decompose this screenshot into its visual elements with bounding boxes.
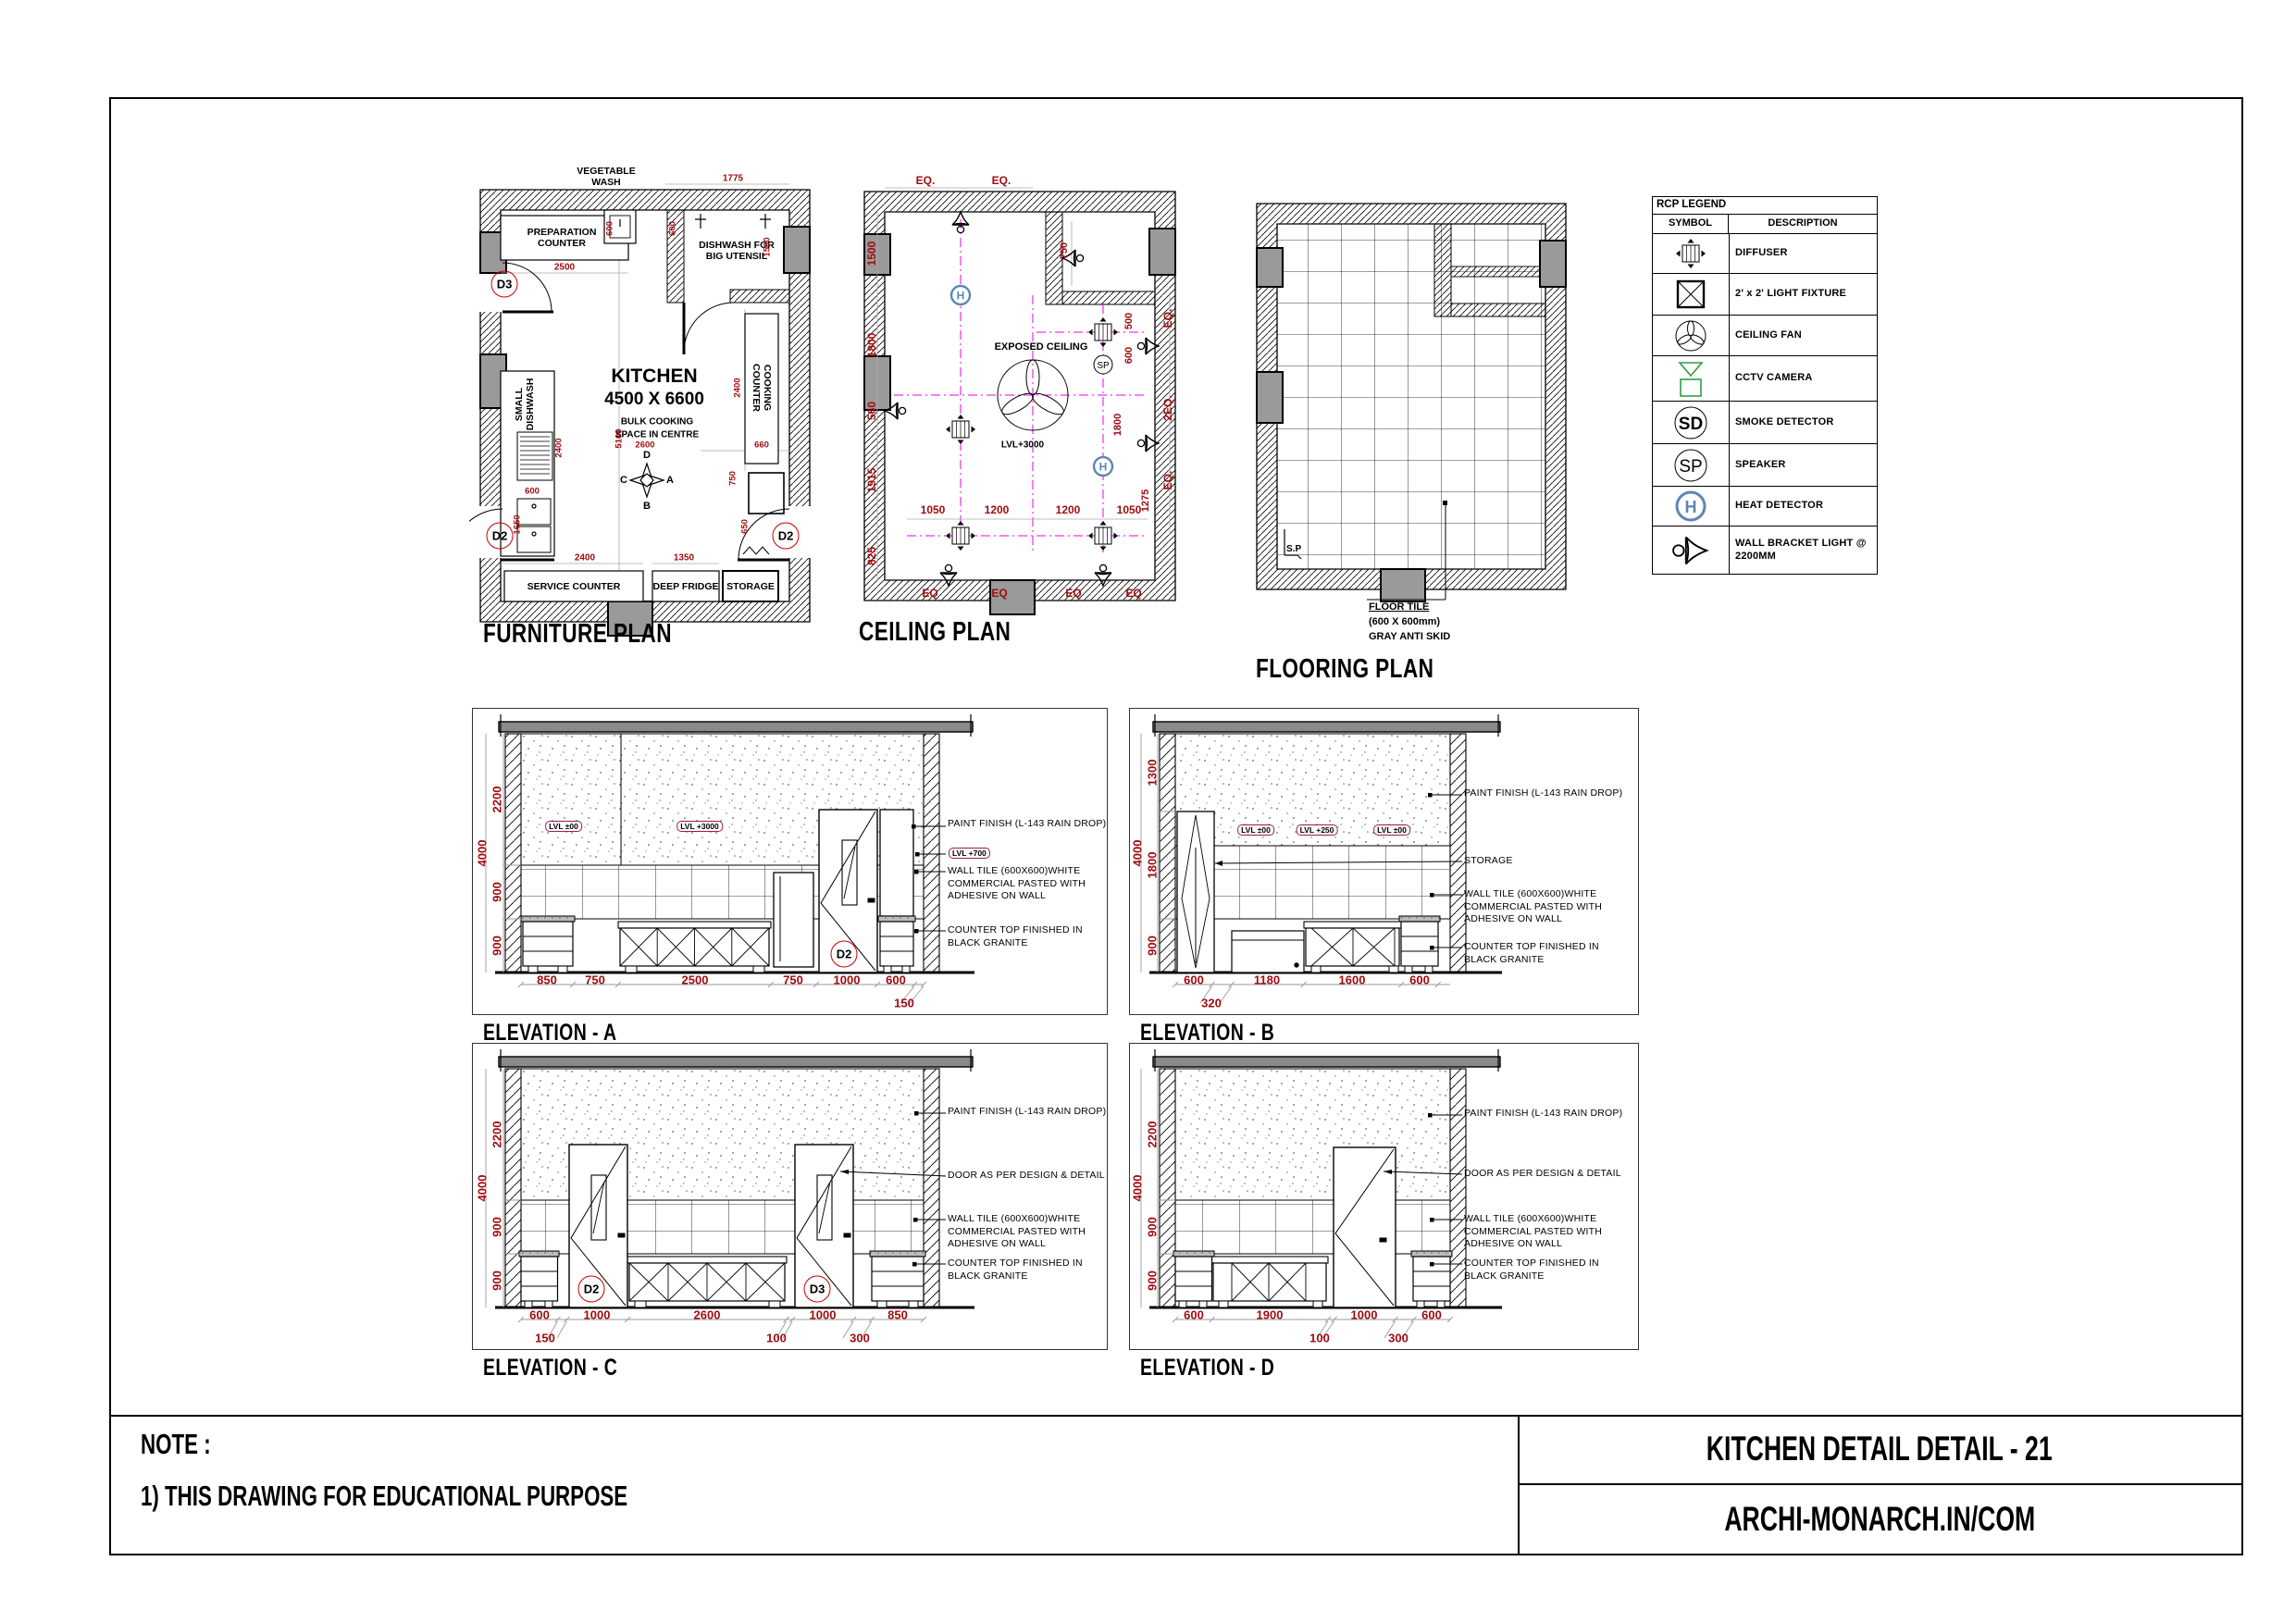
dim: 5100	[614, 428, 625, 448]
room-note-1: BULK COOKING	[621, 417, 693, 427]
pier-left	[1160, 1069, 1175, 1307]
dim-total: 4000	[1131, 1175, 1145, 1202]
annotation-counter-top: COUNTER TOP FINISHED IN BLACK GRANITE	[1464, 941, 1623, 966]
dim: 900	[490, 935, 504, 956]
alcove-hatch-strip	[1451, 266, 1545, 277]
dim: 1900	[1257, 1308, 1284, 1322]
dim: 750	[783, 973, 803, 987]
dim: 600	[1184, 1308, 1204, 1322]
dim-offset: 300	[850, 1332, 870, 1345]
room-note-2: SPACE IN CENTRE	[615, 430, 699, 440]
dim: 600	[668, 221, 678, 236]
level-tag: LVL +250	[1297, 824, 1338, 836]
room-size: 4500 X 6600	[604, 390, 704, 410]
floor-tile-callout-3: GRAY ANTI SKID	[1369, 631, 1450, 642]
dim: 1800	[1112, 414, 1123, 436]
dim: 750	[1059, 242, 1070, 259]
svg-text:SD: SD	[1679, 415, 1703, 434]
annotation-paint: PAINT FINISH (L-143 RAIN DROP)	[948, 818, 1107, 831]
legend-symbol-header: SYMBOL	[1653, 215, 1729, 233]
dim-offset: 100	[766, 1332, 787, 1345]
dim: EQ.	[1161, 309, 1174, 328]
annotation-paint: PAINT FINISH (L-143 RAIN DROP)	[1464, 787, 1623, 800]
dim: EQ	[991, 587, 1007, 600]
pier-left	[505, 734, 521, 973]
sheet-website: ARCHI-MONARCH.IN/COM	[1518, 1485, 2241, 1554]
floor-tile-callout-1: FLOOR TILE	[1369, 601, 1429, 613]
legend-description-header: DESCRIPTION	[1729, 215, 1877, 233]
legend-desc: CEILING FAN	[1730, 316, 1877, 355]
dim: 750	[728, 471, 738, 486]
dim: 1050	[921, 503, 946, 516]
tile-band	[1175, 846, 1450, 919]
dim: 1000	[810, 1308, 837, 1322]
dim: 600	[605, 221, 615, 236]
dim: 2200	[490, 1121, 504, 1148]
legend-row: WALL BRACKET LIGHT @ 2200MM	[1653, 527, 1877, 574]
annotation-paint: PAINT FINISH (L-143 RAIN DROP)	[948, 1106, 1107, 1119]
note-label: NOTE :	[141, 1428, 238, 1461]
dim: 1650	[513, 514, 523, 534]
floor-tile-callout-2: (600 X 600mm)	[1369, 616, 1440, 627]
pier-right	[924, 734, 939, 973]
light-fixture-icon	[1663, 275, 1719, 314]
paint-wall	[1175, 1069, 1450, 1200]
ceiling-plan-drawing: H H SP	[851, 166, 1194, 647]
storage-label: STORAGE	[726, 581, 775, 592]
dim-offset: 150	[535, 1332, 555, 1345]
door-tag-d2: D2	[578, 1276, 605, 1303]
dim: 2400	[554, 438, 565, 457]
dim: 2200	[490, 787, 504, 813]
dim: 2600	[694, 1308, 721, 1322]
dim: 750	[585, 973, 605, 987]
svg-text:SP: SP	[1679, 457, 1702, 477]
dim: EQ	[922, 587, 937, 600]
pier-left	[1160, 734, 1175, 973]
alcove-wall	[1451, 304, 1545, 316]
level-tag: LVL ±00	[1373, 824, 1410, 836]
service-counter-label: SERVICE COUNTER	[527, 581, 621, 592]
ceiling-fan-icon	[1663, 316, 1719, 355]
sheet-title: KITCHEN DETAIL DETAIL - 21	[1518, 1415, 2241, 1483]
ceiling-slab	[1153, 1057, 1500, 1067]
alcove-wall	[730, 290, 789, 303]
pier-left	[505, 1069, 521, 1307]
note-1: 1) THIS DRAWING FOR EDUCATIONAL PURPOSE	[141, 1480, 817, 1513]
flooring-plan-drawing	[1242, 178, 1584, 691]
legend-desc: HEAT DETECTOR	[1730, 487, 1877, 526]
dim: 1200	[985, 503, 1010, 516]
dim: 1275	[1140, 489, 1151, 512]
dim-offset: 320	[1201, 997, 1222, 1010]
vegetable-wash-label: VEGETABLE WASH	[573, 166, 639, 188]
dim: 1050	[1117, 503, 1142, 516]
elevation-d-title: ELEVATION - D	[1140, 1355, 1274, 1381]
door-tag-d2-right: D2	[773, 523, 800, 550]
level-tag: LVL ±00	[545, 821, 582, 832]
flooring-plan: S.P FLOOR TILE (600 X 600mm) GRAY ANTI S…	[1242, 178, 1584, 691]
legend-desc: DIFFUSER	[1730, 234, 1877, 273]
dim: EQ.	[916, 174, 936, 187]
dim: 850	[537, 973, 557, 987]
legend-row: 2' x 2' LIGHT FIXTURE	[1653, 274, 1877, 316]
ceiling-plan: H H SP EXPOSED CEILING LVL+3000 EQ. EQ. …	[851, 166, 1194, 647]
dim: 825	[865, 547, 878, 565]
compass-right: A	[666, 475, 674, 486]
annotation-counter-top: COUNTER TOP FINISHED IN BLACK GRANITE	[948, 1258, 1107, 1282]
legend-desc: WALL BRACKET LIGHT @ 2200MM	[1730, 527, 1877, 574]
dim: 900	[490, 1270, 504, 1291]
dim: 600	[886, 973, 906, 987]
door-tag-d2: D2	[831, 941, 858, 968]
dim-total: 4000	[476, 1175, 490, 1202]
dim: 660	[754, 440, 769, 451]
legend-row: H HEAT DETECTOR	[1653, 487, 1877, 527]
dim: 1300	[1146, 760, 1160, 787]
cooking-counter-label: COOKING COUNTER	[751, 358, 773, 417]
dim: 2600	[635, 440, 654, 451]
deep-fridge-label: DEEP FRIDGE	[653, 581, 719, 592]
annotation-storage: STORAGE	[1464, 855, 1623, 868]
annotation-paint: PAINT FINISH (L-143 RAIN DROP)	[1464, 1108, 1623, 1121]
room-name: KITCHEN	[611, 365, 697, 388]
dim: 850	[887, 1308, 908, 1322]
door-tag-d3: D3	[491, 271, 518, 298]
dim: 2EQ.	[1161, 395, 1174, 420]
elevation-d: 2200 900 900 4000 600 1900 1000 600 100 …	[1129, 1043, 1639, 1350]
dim-total: 4000	[476, 840, 490, 867]
legend-row: CEILING FAN	[1653, 316, 1877, 356]
sheet-border: VEGETABLE WASH PREPARATION COUNTER DISHW…	[109, 97, 2243, 1555]
exposed-ceiling-label: EXPOSED CEILING	[995, 341, 1088, 353]
furniture-plan: VEGETABLE WASH PREPARATION COUNTER DISHW…	[469, 166, 821, 647]
door-tag-d3: D3	[804, 1276, 831, 1303]
legend-desc: SMOKE DETECTOR	[1730, 402, 1877, 443]
heat-detector-icon: H	[1663, 488, 1719, 525]
dim: 1775	[723, 174, 743, 184]
tile-band	[1175, 1200, 1450, 1254]
preparation-counter-label: PREPARATION COUNTER	[517, 227, 606, 249]
dim: 900	[1146, 1217, 1160, 1237]
dim: EQ	[1125, 587, 1141, 600]
dim: 2500	[682, 973, 709, 987]
dim: 1000	[834, 973, 861, 987]
dim: 650	[740, 519, 751, 534]
pier-right	[1450, 734, 1466, 973]
dim-lines	[877, 188, 1170, 580]
dim: 1200	[1056, 503, 1081, 516]
dim-offset: 100	[1309, 1332, 1330, 1345]
dim: 560	[865, 402, 878, 420]
annotation-door: DOOR AS PER DESIGN & DETAIL	[948, 1170, 1107, 1183]
compass-left: C	[620, 475, 627, 486]
speaker-icon: SP	[1663, 445, 1719, 486]
pier-right	[924, 1069, 939, 1307]
heat-detector-glyph: H	[1099, 461, 1108, 474]
dim: 1000	[584, 1308, 611, 1322]
elevation-d-drawing	[1130, 1044, 1638, 1349]
dim: 1600	[1339, 973, 1366, 987]
dim: 2400	[733, 378, 743, 397]
annotation-wall-tile: WALL TILE (600X600)WHITE COMMERCIAL PAST…	[1464, 1213, 1623, 1251]
dim: 1180	[1254, 973, 1280, 987]
dim: EQ.	[992, 174, 1011, 187]
elevation-a-drawing	[473, 709, 1107, 1014]
annotation-counter-top: COUNTER TOP FINISHED IN BLACK GRANITE	[1464, 1258, 1623, 1282]
elevation-c: 2200 900 900 4000 600 1000 2600 1000 850…	[472, 1043, 1108, 1350]
elevation-c-drawing	[473, 1044, 1107, 1349]
dim: 1800	[865, 333, 878, 358]
elevation-c-title: ELEVATION - C	[483, 1355, 617, 1381]
legend-row: SP SPEAKER	[1653, 444, 1877, 487]
legend-row: SD SMOKE DETECTOR	[1653, 402, 1877, 444]
centerlines	[894, 219, 1148, 552]
dim: 2200	[1146, 1121, 1160, 1148]
columns	[864, 229, 1175, 614]
dim: EQ.	[1161, 471, 1174, 490]
legend-desc: SPEAKER	[1730, 444, 1877, 486]
dim: 600	[525, 487, 540, 497]
annotation-wall-tile: WALL TILE (600X600)WHITE COMMERCIAL PAST…	[948, 1213, 1107, 1251]
legend-header: SYMBOL DESCRIPTION	[1653, 215, 1877, 234]
wall-bracket-light-icon	[1663, 527, 1719, 574]
rcp-legend: RCP LEGEND SYMBOL DESCRIPTION DIFFUSER 2…	[1652, 196, 1878, 575]
dim: 1000	[1351, 1308, 1378, 1322]
door-tag-d2-left: D2	[487, 523, 514, 550]
dim: 1500	[763, 237, 773, 256]
ceiling-level-label: LVL+3000	[1001, 440, 1044, 451]
furniture-plan-title: FURNITURE PLAN	[483, 619, 672, 650]
dim: 1350	[674, 553, 694, 564]
dim: 2500	[554, 263, 575, 273]
dim-offset: 300	[1388, 1332, 1409, 1345]
legend-desc: CCTV CAMERA	[1730, 356, 1877, 401]
smoke-detector-icon: SD	[1663, 403, 1719, 443]
dim: 600	[1184, 973, 1204, 987]
dim: 600	[529, 1308, 550, 1322]
dim: 1800	[1146, 852, 1160, 879]
cctv-camera-icon	[1663, 357, 1719, 400]
compass-icon	[630, 464, 664, 497]
level-tag: LVL +3000	[676, 821, 723, 832]
heat-detector-glyph: H	[957, 290, 965, 303]
dim: 900	[1146, 935, 1160, 956]
diffuser-icon	[1663, 235, 1719, 272]
annotation-wall-tile: WALL TILE (600X600)WHITE COMMERCIAL PAST…	[948, 865, 1107, 903]
dim-total: 4000	[1131, 840, 1145, 867]
dim: 2400	[575, 553, 595, 564]
legend-row: CCTV CAMERA	[1653, 356, 1877, 402]
level-callout: LVL +700	[949, 848, 990, 859]
dim: 600	[1421, 1308, 1442, 1322]
annotation-wall-tile: WALL TILE (600X600)WHITE COMMERCIAL PAST…	[1464, 888, 1623, 926]
legend-row: DIFFUSER	[1653, 234, 1877, 274]
compass-top: D	[643, 450, 651, 461]
speaker-glyph: SP	[1097, 361, 1110, 371]
compass-bottom: B	[643, 501, 651, 512]
dim: 1500	[865, 242, 878, 266]
small-dishwash-label: SMALL DISHWASH	[514, 365, 536, 444]
ceiling-plan-title: CEILING PLAN	[859, 617, 1011, 648]
ceiling-slab	[1153, 722, 1500, 732]
drawing-sheet-page: { "sheet": { "note_label": "NOTE :", "no…	[0, 0, 2296, 1623]
annotation-door: DOOR AS PER DESIGN & DETAIL	[1464, 1168, 1623, 1181]
sp-label: S.P	[1286, 544, 1301, 554]
dim: 500	[1123, 313, 1135, 329]
annotation-counter-top: COUNTER TOP FINISHED IN BLACK GRANITE	[948, 924, 1107, 949]
alcove-partition	[1434, 224, 1451, 316]
alcove-wall	[1062, 291, 1155, 304]
dim: 900	[490, 1217, 504, 1237]
wall-bracket-light-icons	[885, 212, 1159, 586]
dim: EQ	[1065, 587, 1081, 600]
legend-title: RCP LEGEND	[1653, 197, 1877, 215]
ceiling-slab	[499, 1057, 973, 1067]
flooring-plan-title: FLOORING PLAN	[1256, 654, 1433, 685]
dim: 1915	[865, 468, 878, 493]
dim: 900	[490, 882, 504, 902]
svg-text:H: H	[1685, 498, 1697, 516]
dim: 600	[1409, 973, 1430, 987]
ceiling-slab	[499, 722, 973, 732]
dim: 600	[1123, 347, 1135, 364]
legend-desc: 2' x 2' LIGHT FIXTURE	[1730, 274, 1877, 315]
dim-offset: 150	[894, 997, 914, 1010]
level-tag: LVL ±00	[1237, 824, 1274, 836]
elevation-b: LVL ±00 LVL +250 LVL ±00 1300 1800 900 4…	[1129, 708, 1639, 1015]
dim: 900	[1146, 1270, 1160, 1291]
elevation-a: LVL ±00 LVL +3000 LVL +700 2200 900 900 …	[472, 708, 1108, 1015]
